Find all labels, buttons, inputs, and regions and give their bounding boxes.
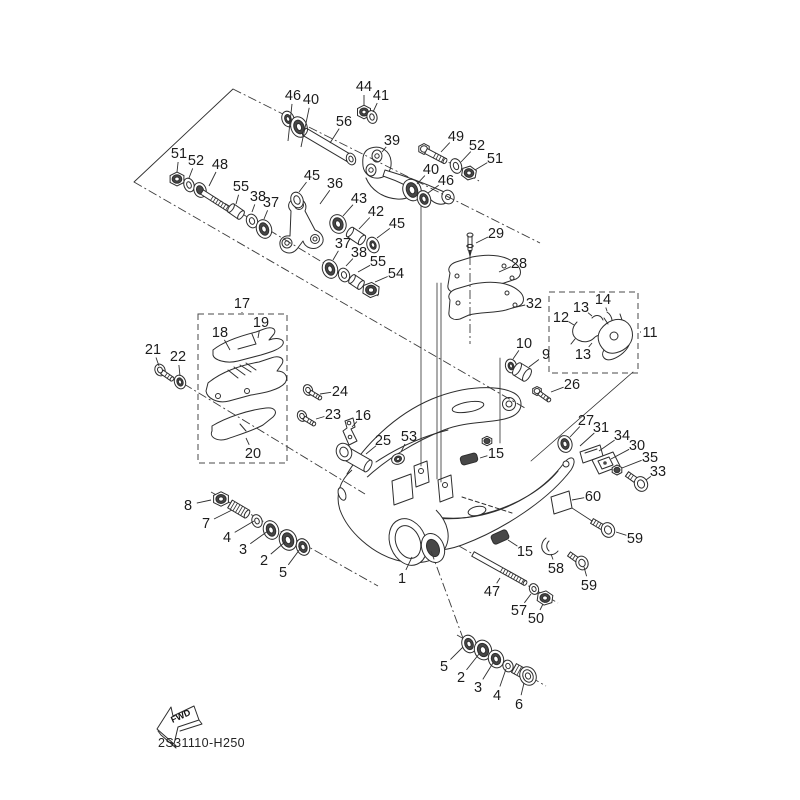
hardware-bolt-21: [161, 370, 175, 382]
bolt-29: [467, 233, 473, 258]
leader-line: [475, 163, 487, 170]
hardware-bearing-3L: [261, 519, 282, 542]
leader-line: [320, 190, 330, 204]
diagram-code: 2S31110-H250: [158, 736, 245, 750]
part-label-52: 52: [469, 138, 485, 154]
hardware-nut-35: [612, 465, 622, 475]
part-label-57: 57: [511, 603, 527, 619]
hardware-bearing-43: [327, 212, 349, 235]
label-plate-60: [551, 491, 572, 514]
part-label-42: 42: [368, 204, 384, 220]
part-label-24: 24: [332, 384, 348, 400]
part-label-16: 16: [355, 408, 371, 424]
part-label-21: 21: [145, 342, 161, 358]
part-label-13: 13: [573, 300, 589, 316]
hardware-bolt-26: [538, 391, 552, 402]
part-label-4: 4: [493, 688, 501, 704]
part-label-20: 20: [245, 446, 261, 462]
chain-guide-lower-20: [211, 408, 275, 440]
hardware-bearing-37m: [320, 258, 341, 281]
leader-line: [524, 594, 531, 603]
part-label-60: 60: [585, 489, 601, 505]
part-label-55: 55: [370, 254, 386, 270]
leader-line: [214, 510, 232, 519]
leader-line: [330, 129, 339, 143]
part-label-54: 54: [388, 266, 404, 282]
part-label-59: 59: [627, 531, 643, 547]
leader-line: [177, 162, 178, 172]
parts-diagram-page: FWD 464044415639495251404651524855383745…: [0, 0, 800, 800]
leader-line: [209, 172, 216, 186]
hardware-flange-nut: [482, 436, 492, 445]
part-label-15: 15: [488, 446, 504, 462]
part-label-6: 6: [515, 697, 523, 713]
part-label-41: 41: [373, 88, 389, 104]
part-label-3: 3: [474, 680, 482, 696]
leader-line: [599, 440, 615, 451]
leader-line: [250, 531, 268, 544]
leader-line: [316, 417, 324, 420]
part-label-5: 5: [279, 565, 287, 581]
part-label-46: 46: [438, 173, 454, 189]
leader-line: [497, 578, 500, 583]
part-label-32: 32: [526, 296, 542, 312]
part-label-13: 13: [575, 347, 591, 363]
leader-line: [467, 654, 480, 670]
leader-line: [377, 228, 390, 238]
leader-line: [606, 308, 607, 312]
swingarm-part-1: [336, 388, 574, 571]
part-label-3: 3: [239, 542, 247, 558]
part-label-45: 45: [389, 216, 405, 232]
hardware-bolt-24: [309, 390, 322, 400]
hardware-washer-45b: [365, 235, 382, 254]
part-label-14: 14: [595, 292, 611, 308]
part-label-9: 9: [542, 347, 550, 363]
spring-12: [573, 322, 594, 342]
leader-line: [288, 549, 300, 565]
part-label-2: 2: [457, 670, 465, 686]
hardware-bolt-7: [228, 500, 251, 519]
part-label-19: 19: [253, 315, 269, 331]
part-label-40: 40: [303, 92, 319, 108]
leader-line: [500, 669, 506, 687]
part-label-18: 18: [212, 325, 228, 341]
part-label-52: 52: [188, 153, 204, 169]
part-label-58: 58: [548, 561, 564, 577]
leader-line: [521, 683, 524, 695]
part-label-26: 26: [564, 377, 580, 393]
hardware-nut-8: [214, 492, 229, 506]
leader-line: [551, 387, 564, 392]
part-label-38: 38: [351, 245, 367, 261]
leader-line: [179, 365, 180, 376]
part-label-46: 46: [285, 88, 301, 104]
part-label-25: 25: [375, 433, 391, 449]
hardware-bearing-2L: [276, 527, 299, 553]
part-label-23: 23: [325, 407, 341, 423]
leader-line: [235, 521, 254, 532]
part-label-28: 28: [511, 256, 527, 272]
part-label-53: 53: [401, 429, 417, 445]
hardware-nut-54: [363, 282, 380, 299]
part-label-22: 22: [170, 349, 186, 365]
part-label-4: 4: [223, 530, 231, 546]
hardware-collar-55L: [226, 203, 245, 221]
part-label-48: 48: [212, 157, 228, 173]
leader-line: [480, 456, 487, 458]
leader-line: [476, 237, 488, 243]
part-label-2: 2: [260, 553, 268, 569]
part-label-56: 56: [336, 114, 352, 130]
rear-arm-exploded-diagram: FWD 464044415639495251404651524855383745…: [0, 0, 800, 800]
part-label-31: 31: [593, 420, 609, 436]
leader-line: [529, 360, 539, 368]
part-label-36: 36: [327, 176, 343, 192]
leader-line: [320, 392, 331, 394]
leader-line: [572, 498, 584, 500]
part-label-15: 15: [517, 544, 533, 560]
leader-line: [333, 251, 338, 260]
leader-line: [236, 195, 239, 204]
leader-line: [264, 210, 268, 219]
part-label-8: 8: [184, 498, 192, 514]
chain-guide-middle: [206, 357, 287, 402]
leader-line: [569, 322, 574, 325]
part-label-34: 34: [614, 428, 630, 444]
clip-13a: [592, 316, 603, 320]
leader-line: [375, 277, 388, 283]
part-label-5: 5: [440, 659, 448, 675]
leader-line: [450, 647, 463, 660]
leader-line: [483, 663, 493, 679]
part-label-59: 59: [581, 578, 597, 594]
leader-line: [197, 500, 211, 503]
part-label-7: 7: [202, 516, 210, 532]
leader-line: [246, 438, 249, 445]
leader-line: [358, 265, 370, 272]
part-label-12: 12: [553, 310, 569, 326]
part-label-37: 37: [263, 195, 279, 211]
leader-line: [622, 460, 642, 468]
part-label-40: 40: [423, 162, 439, 178]
hardware-nut-51L: [170, 172, 184, 186]
part-label-49: 49: [448, 129, 464, 145]
clamp-58: [542, 538, 558, 555]
part-label-45: 45: [304, 168, 320, 184]
leader-line: [373, 103, 377, 112]
part-label-37: 37: [335, 236, 351, 252]
hardware-grommet-22: [172, 374, 187, 391]
part-label-39: 39: [384, 133, 400, 149]
part-label-44: 44: [356, 79, 372, 95]
part-label-51: 51: [487, 151, 503, 167]
leader-line: [616, 532, 626, 535]
part-label-55: 55: [233, 179, 249, 195]
leader-line: [252, 204, 255, 212]
part-label-17: 17: [234, 296, 250, 312]
part-label-50: 50: [528, 611, 544, 627]
leader-line: [189, 168, 193, 178]
hardware-damper-15a: [460, 452, 479, 465]
part-label-47: 47: [484, 584, 500, 600]
part-label-43: 43: [351, 191, 367, 207]
part-label-33: 33: [650, 464, 666, 480]
part-label-1: 1: [398, 571, 406, 587]
part-label-29: 29: [488, 226, 504, 242]
leader-line: [540, 604, 543, 610]
hardware-bolt-23: [303, 416, 316, 426]
part-label-11: 11: [642, 325, 657, 341]
guard-plate-32: [449, 282, 524, 319]
part-label-27: 27: [578, 413, 594, 429]
part-label-10: 10: [516, 336, 532, 352]
part-label-51: 51: [171, 146, 187, 162]
